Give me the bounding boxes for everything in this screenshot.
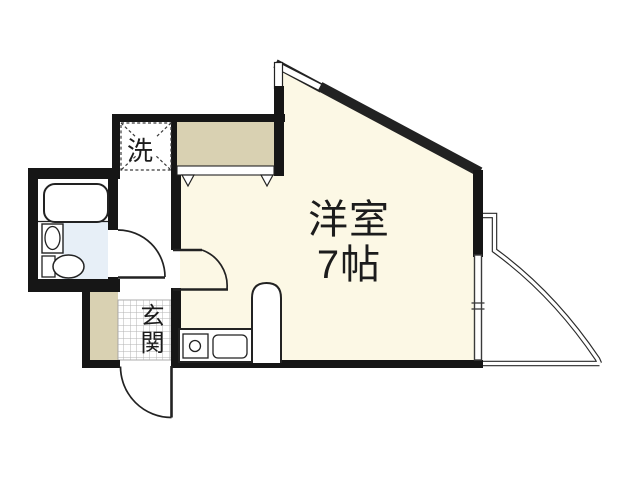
- room-name: 洋室: [282, 198, 416, 243]
- bath-right-wall-upper: [108, 168, 118, 230]
- bottom-wall-left: [82, 360, 120, 368]
- sink-basin: [45, 227, 60, 250]
- right-wall-upper: [473, 170, 483, 257]
- counter-end-panel: [252, 283, 281, 363]
- top-wall: [112, 114, 285, 122]
- floorplan-page: 洋室 7帖 洗 玄関: [0, 0, 640, 480]
- stove: [183, 334, 208, 358]
- washer-closet-divider: [171, 122, 177, 172]
- room-size: 7帖: [282, 243, 416, 288]
- entrance-label: 玄関: [132, 303, 167, 357]
- left-lower-wall: [82, 290, 90, 368]
- bath-bottom-wall: [28, 279, 120, 292]
- bath-right-wall-lower: [108, 277, 118, 292]
- entrance-door: [121, 366, 172, 418]
- kitchen-sink: [213, 335, 247, 358]
- washer-label: 洗: [127, 131, 153, 168]
- bathroom-door: [118, 230, 165, 278]
- closet-floor: [175, 122, 274, 167]
- closet-right-wall: [274, 86, 284, 176]
- room-label: 洋室 7帖: [282, 198, 416, 288]
- balcony-outline: [483, 216, 600, 364]
- pipe-space-floor: [90, 292, 118, 360]
- corridor-wall-upper: [171, 167, 181, 250]
- toilet-bowl: [53, 255, 84, 278]
- corner-window-side: [275, 63, 283, 89]
- bath-left-wall: [28, 168, 38, 292]
- bathtub: [44, 184, 108, 222]
- bath-top-wall: [28, 168, 120, 179]
